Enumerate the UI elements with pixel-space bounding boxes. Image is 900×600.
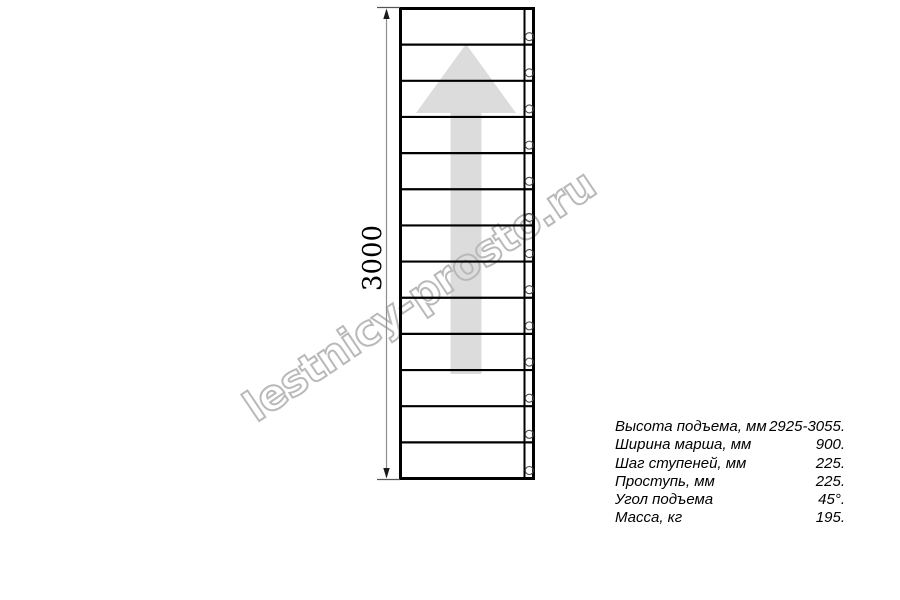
spec-label: Угол подъема	[615, 491, 713, 509]
dimension-arrowhead-bottom	[383, 468, 389, 479]
spec-label: Шаг ступеней, мм	[615, 455, 746, 473]
spec-label: Масса, кг	[615, 509, 682, 527]
spec-value: 900.	[816, 436, 845, 454]
dimension-label: 3000	[359, 223, 387, 293]
spec-row: Высота подъема, мм2925-3055.	[615, 418, 845, 436]
spec-label: Высота подъема, мм	[615, 418, 767, 436]
spec-value: 195.	[816, 509, 845, 527]
tread-lines	[401, 45, 534, 443]
spec-value: 45°.	[818, 491, 845, 509]
spec-value: 225.	[816, 455, 845, 473]
spec-row: Ширина марша, мм900.	[615, 436, 845, 454]
spec-label: Ширина марша, мм	[615, 436, 751, 454]
spec-row: Масса, кг195.	[615, 509, 845, 527]
spec-label: Проступь, мм	[615, 473, 715, 491]
dimension-arrowhead-top	[383, 9, 389, 20]
ladder-outline	[401, 9, 534, 479]
spec-value: 2925-3055.	[769, 418, 845, 436]
spec-value: 225.	[816, 473, 845, 491]
spec-table: Высота подъема, мм2925-3055.Ширина марша…	[615, 418, 845, 528]
spec-row: Шаг ступеней, мм225.	[615, 455, 845, 473]
spec-row: Проступь, мм225.	[615, 473, 845, 491]
technical-drawing-canvas: lestnicy-prosto.ru 3000 Высота подъема, …	[0, 0, 900, 600]
spec-row: Угол подъема45°.	[615, 491, 845, 509]
